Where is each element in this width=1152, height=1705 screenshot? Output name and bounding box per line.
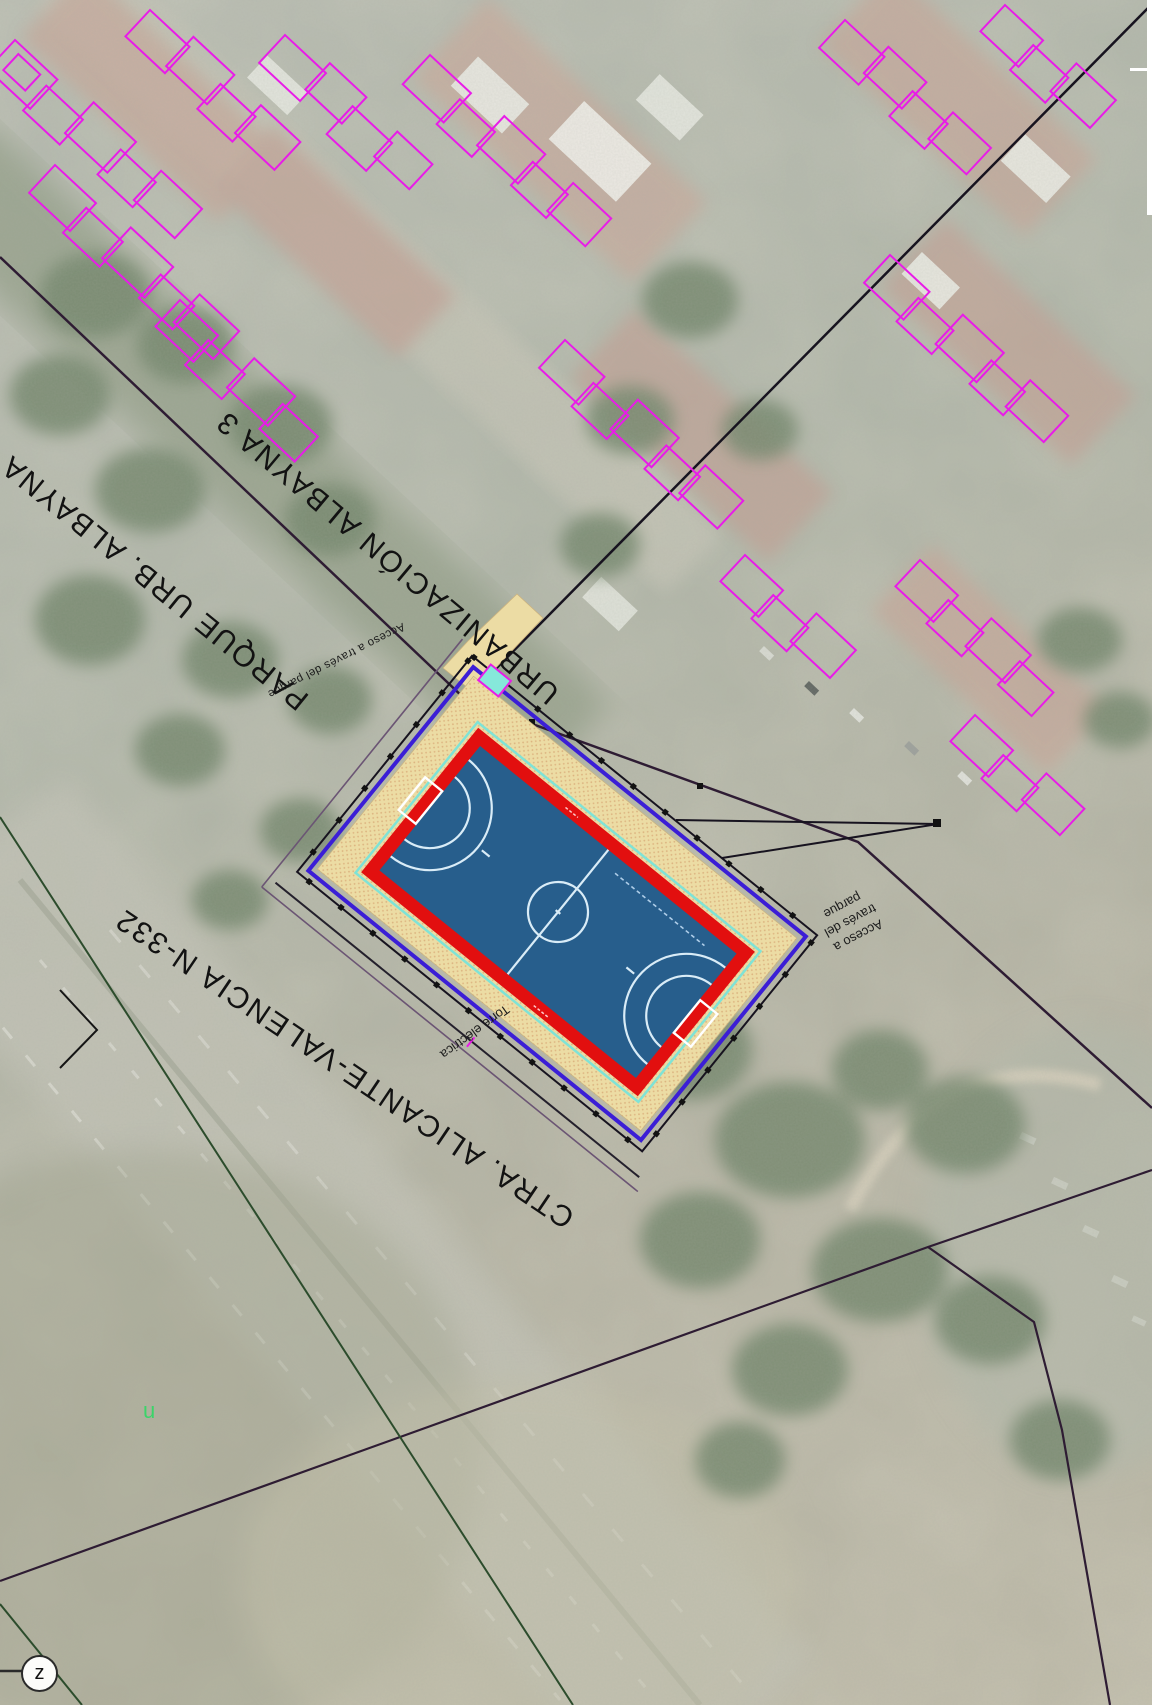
- aerial-overlay-canvas: [0, 0, 1152, 1705]
- sheet-edge: [1147, 0, 1152, 215]
- north-marker-icon: z: [21, 1655, 58, 1692]
- survey-point-u-marker: u: [143, 1398, 155, 1424]
- north-marker-letter: z: [35, 1662, 45, 1685]
- site-plan-map[interactable]: PARQUE URB. ALBAYNA URBANIZACIÓN ALBAYNA…: [0, 0, 1152, 1705]
